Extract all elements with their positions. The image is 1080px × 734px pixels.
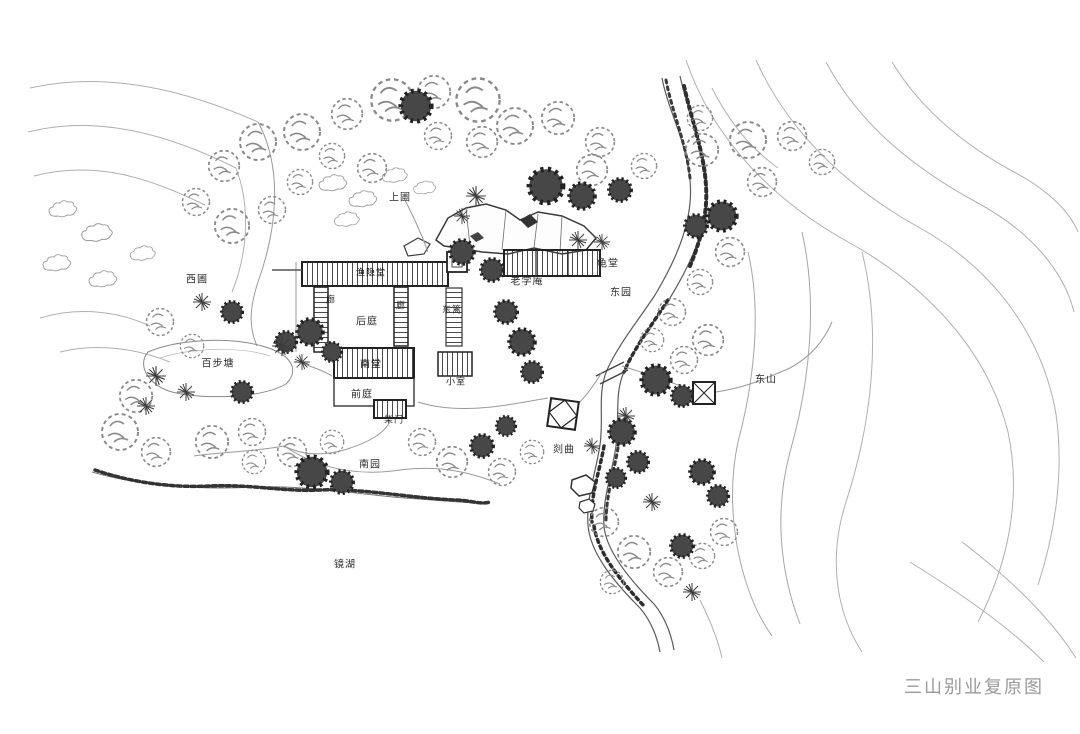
label-laoxuean: 老学庵: [511, 273, 544, 288]
label-dongshan: 东山: [755, 371, 777, 386]
lake-shore: [92, 470, 490, 504]
label-shangpu: 上圃: [389, 189, 411, 204]
room-xiaoshi: [438, 352, 472, 376]
label-houting: 后庭: [356, 313, 378, 328]
rock-outcrop: [404, 204, 596, 256]
label-qianting: 前庭: [351, 386, 373, 401]
label-guitang: 龟堂: [597, 255, 619, 270]
hedge-dongli: [446, 288, 462, 346]
label-jinghu: 镜湖: [334, 556, 356, 571]
label-xipu: 西圃: [186, 271, 208, 286]
bridge: [596, 362, 628, 384]
corridor-east: [394, 286, 408, 346]
contours-east-mountain: [686, 60, 1078, 662]
water-pavilion: [547, 398, 579, 430]
label-nanyuan: 南园: [359, 456, 381, 471]
site-plan-drawing: [0, 0, 1080, 734]
label-yuyintang: 渔隐堂: [356, 266, 386, 279]
label-lang-east: 廊: [396, 299, 406, 312]
label-chaimen: 柴门: [384, 413, 404, 426]
label-shanqu: 剡曲: [553, 441, 575, 456]
restoration-plan-page: 上圃 西圃 渔隐堂 廊 廊 后庭 东篱 老学庵 龟堂 东园 百步塘 南堂 小室 …: [0, 0, 1080, 734]
label-baibutang: 百步塘: [202, 355, 235, 370]
label-nantang: 南堂: [360, 356, 382, 371]
east-bank-pavilion: [693, 382, 715, 404]
label-lang-west: 廊: [326, 293, 336, 306]
label-xiaoshi: 小室: [446, 375, 466, 388]
trees-light: [102, 76, 835, 594]
figure-caption: 三山别业复原图: [904, 673, 1044, 699]
label-dongyuan: 东园: [610, 284, 632, 299]
label-dongli: 东篱: [442, 303, 462, 316]
